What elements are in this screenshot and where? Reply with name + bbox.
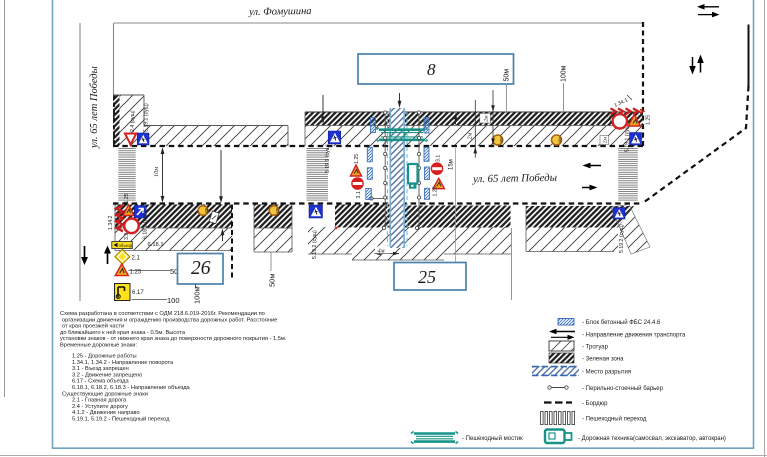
svg-text:Существующие дорожные знаки: Существующие дорожные знаки — [62, 391, 148, 397]
svg-text:2м: 2м — [468, 133, 474, 140]
svg-text:3.2 - Движение запрещено: 3.2 - Движение запрещено — [72, 372, 142, 378]
svg-text:3.2: 3.2 — [607, 115, 613, 122]
svg-text:40: 40 — [558, 137, 563, 143]
svg-text:- Дорожная техника(самосвал, э: - Дорожная техника(самосвал, экскаватор,… — [578, 436, 726, 442]
svg-text:организации движения и огражде: организации движения и ограждению произв… — [62, 317, 277, 323]
svg-text:2.1 - Главная дорога: 2.1 - Главная дорога — [72, 398, 127, 404]
svg-text:3.2: 3.2 — [124, 233, 130, 240]
svg-text:4.1.2 - Движение направо: 4.1.2 - Движение направо — [72, 410, 140, 416]
svg-text:до ближайшего к ней края знака: до ближайшего к ней края знака - 0.5м. В… — [60, 329, 186, 336]
svg-text:5.19.1 (сущ): 5.19.1 (сущ) — [144, 103, 150, 132]
svg-text:- Блок бетонный ФБС 24.4.6: - Блок бетонный ФБС 24.4.6 — [582, 319, 661, 326]
svg-text:3.1: 3.1 — [436, 155, 442, 162]
svg-text:3.1: 3.1 — [356, 191, 362, 198]
svg-text:5.19.2 (сущ): 5.19.2 (сущ) — [619, 224, 625, 253]
svg-text:- Направление движения транспо: - Направление движения транспорта — [582, 333, 686, 339]
svg-text:6.17 - Схема объезда: 6.17 - Схема объезда — [72, 379, 129, 385]
svg-text:2.1: 2.1 — [132, 256, 141, 262]
svg-text:6.17: 6.17 — [132, 290, 144, 296]
svg-text:2.4 - Уступите дорогу: 2.4 - Уступите дорогу — [72, 404, 128, 410]
svg-text:50м: 50м — [268, 274, 277, 288]
svg-text:Временные дорожные знаки:: Временные дорожные знаки: — [60, 343, 137, 349]
svg-text:5.19.2 (сущ): 5.19.2 (сущ) — [312, 230, 318, 259]
svg-text:1.34.1, 1.34.2 - Направление п: 1.34.1, 1.34.2 - Направление поворота — [72, 360, 174, 366]
svg-text:1.25 - Дорожные работы: 1.25 - Дорожные работы — [72, 354, 137, 360]
svg-text:- Тротуар: - Тротуар — [582, 345, 609, 351]
svg-text:1.25: 1.25 — [646, 115, 652, 125]
svg-text:40: 40 — [275, 208, 280, 213]
svg-text:100м: 100м — [193, 286, 202, 304]
svg-text:1.34.2: 1.34.2 — [108, 215, 114, 230]
svg-text:объезд: объезд — [119, 243, 133, 248]
svg-text:100м: 100м — [561, 65, 568, 82]
svg-text:10м: 10м — [153, 167, 160, 177]
svg-text:100: 100 — [167, 296, 180, 305]
svg-text:- Перильно-стоечный барьер: - Перильно-стоечный барьер — [582, 385, 664, 392]
svg-text:- Пешеходный мостик: - Пешеходный мостик — [462, 435, 523, 442]
svg-text:6.18.2 (сущ): 6.18.2 (сущ) — [143, 210, 149, 239]
svg-text:2м: 2м — [602, 137, 608, 144]
svg-text:ул. Фомушина: ул. Фомушина — [248, 6, 312, 18]
svg-text:установки знаков - от нижнего: установки знаков - от нижнего края знака… — [60, 336, 287, 342]
svg-text:2.4 (сущ): 2.4 (сущ) — [130, 110, 136, 132]
svg-text:1.25: 1.25 — [354, 154, 360, 164]
svg-text:26: 26 — [191, 258, 211, 279]
svg-text:от края проезжей части: от края проезжей части — [62, 323, 124, 330]
svg-text:3.1 - Въезд запрещен: 3.1 - Въезд запрещен — [72, 366, 129, 372]
svg-text:5.19.1, 5.19.2 - Пешеходный пе: 5.19.1, 5.19.2 - Пешеходный переход — [72, 416, 170, 423]
svg-text:40: 40 — [204, 208, 209, 213]
svg-text:50м: 50м — [504, 69, 511, 82]
svg-text:25: 25 — [418, 267, 436, 287]
svg-text:1.25: 1.25 — [124, 193, 130, 203]
svg-text:- Зеленая зона: - Зеленая зона — [582, 357, 624, 363]
svg-text:8: 8 — [427, 60, 436, 79]
svg-text:6.18.1, 6.18.2, 6.18.3 - Напра: 6.18.1, 6.18.2, 6.18.3 - Направление объ… — [72, 385, 191, 391]
svg-text:4м: 4м — [378, 248, 385, 255]
svg-text:5.19.1 (сущ): 5.19.1 (сущ) — [325, 144, 331, 173]
svg-text:15м: 15м — [449, 159, 455, 170]
svg-text:- Пешеходный переход: - Пешеходный переход — [582, 416, 647, 423]
svg-text:Схема разработана в соответств: Схема разработана в соответствии с ОДМ 2… — [60, 311, 265, 317]
svg-text:1.25: 1.25 — [433, 186, 439, 196]
svg-text:6.18.1: 6.18.1 — [148, 242, 164, 248]
svg-text:- Бордюр: - Бордюр — [582, 401, 608, 407]
svg-text:ул. 65 лет Победы: ул. 65 лет Победы — [472, 172, 557, 185]
svg-text:2м: 2м — [484, 115, 490, 122]
svg-text:40: 40 — [499, 137, 504, 143]
svg-text:- Место разрытия: - Место разрытия — [582, 370, 631, 376]
svg-text:ул. 65 лет Победы: ул. 65 лет Победы — [89, 66, 100, 149]
